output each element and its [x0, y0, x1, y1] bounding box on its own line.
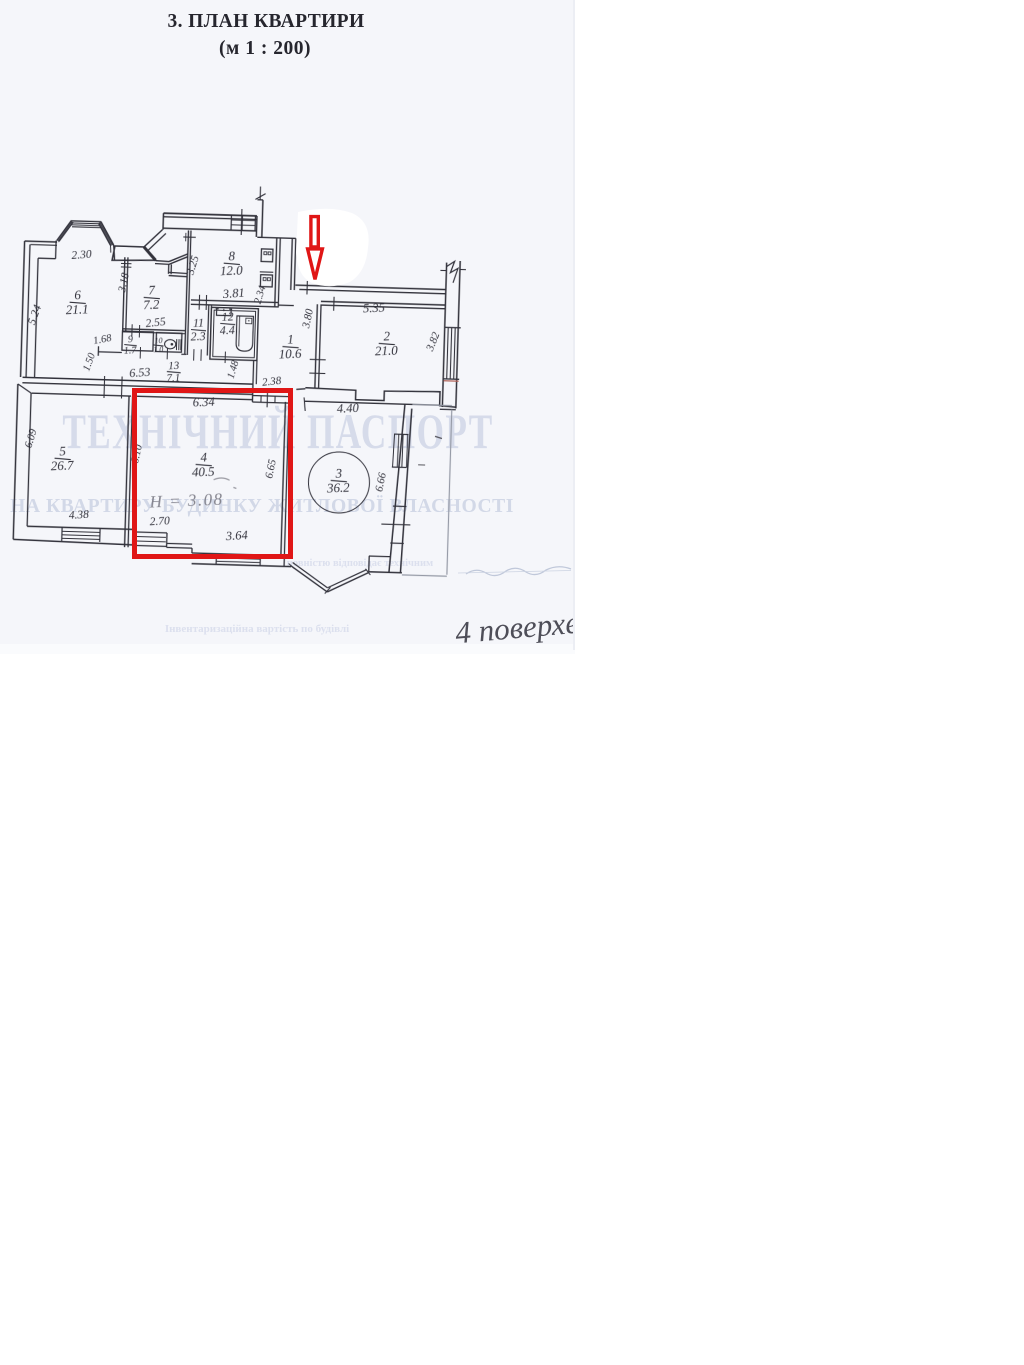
- svg-text:3.64: 3.64: [224, 528, 248, 543]
- svg-text:3.81: 3.81: [221, 286, 245, 302]
- svg-text:2.30: 2.30: [71, 249, 92, 262]
- svg-text:(м 1 : 200): (м 1 : 200): [219, 38, 311, 59]
- svg-text:1.7: 1.7: [124, 345, 138, 357]
- svg-text:2.3: 2.3: [190, 329, 206, 344]
- svg-text:Інвентаризаційна вартість по б: Інвентаризаційна вартість по будівлі: [165, 623, 349, 635]
- svg-text:2.38: 2.38: [261, 375, 282, 389]
- svg-text:7.1: 7.1: [166, 372, 180, 385]
- svg-text:2: 2: [383, 328, 391, 343]
- svg-text:26.7: 26.7: [50, 457, 74, 473]
- svg-text:11: 11: [193, 316, 205, 330]
- svg-text:5: 5: [59, 443, 67, 458]
- svg-text:40.5: 40.5: [192, 464, 216, 480]
- svg-text:12: 12: [221, 309, 234, 323]
- svg-text:4.4: 4.4: [219, 323, 235, 338]
- svg-text:3. ПЛАН КВАРТИРИ: 3. ПЛАН КВАРТИРИ: [167, 11, 364, 32]
- svg-text:1.0: 1.0: [153, 345, 163, 354]
- svg-text:6.53: 6.53: [129, 365, 151, 381]
- svg-text:10.6: 10.6: [278, 346, 302, 362]
- svg-text:9: 9: [128, 334, 133, 345]
- svg-text:8: 8: [228, 248, 236, 263]
- svg-text:повністю відповідає технічним: повністю відповідає технічним: [287, 558, 433, 569]
- svg-text:36.2: 36.2: [326, 480, 351, 496]
- svg-text:2.55: 2.55: [145, 316, 167, 330]
- svg-text:4.40: 4.40: [337, 401, 360, 416]
- svg-text:4: 4: [200, 449, 208, 464]
- svg-text:21.0: 21.0: [375, 342, 399, 358]
- svg-text:2.70: 2.70: [149, 515, 170, 528]
- svg-text:4.38: 4.38: [68, 509, 89, 522]
- svg-text:12.0: 12.0: [220, 262, 244, 278]
- svg-text:7: 7: [148, 282, 156, 297]
- svg-text:6.34: 6.34: [193, 395, 215, 410]
- svg-text:21.1: 21.1: [66, 301, 89, 317]
- svg-text:5.35: 5.35: [363, 301, 385, 316]
- svg-text:13: 13: [168, 360, 180, 372]
- svg-text:7.2: 7.2: [143, 297, 160, 313]
- svg-text:Н = 3.08: Н = 3.08: [148, 490, 224, 512]
- svg-text:1: 1: [287, 331, 294, 346]
- svg-text:10: 10: [154, 336, 162, 345]
- svg-text:3: 3: [334, 465, 343, 480]
- svg-text:6: 6: [74, 287, 82, 302]
